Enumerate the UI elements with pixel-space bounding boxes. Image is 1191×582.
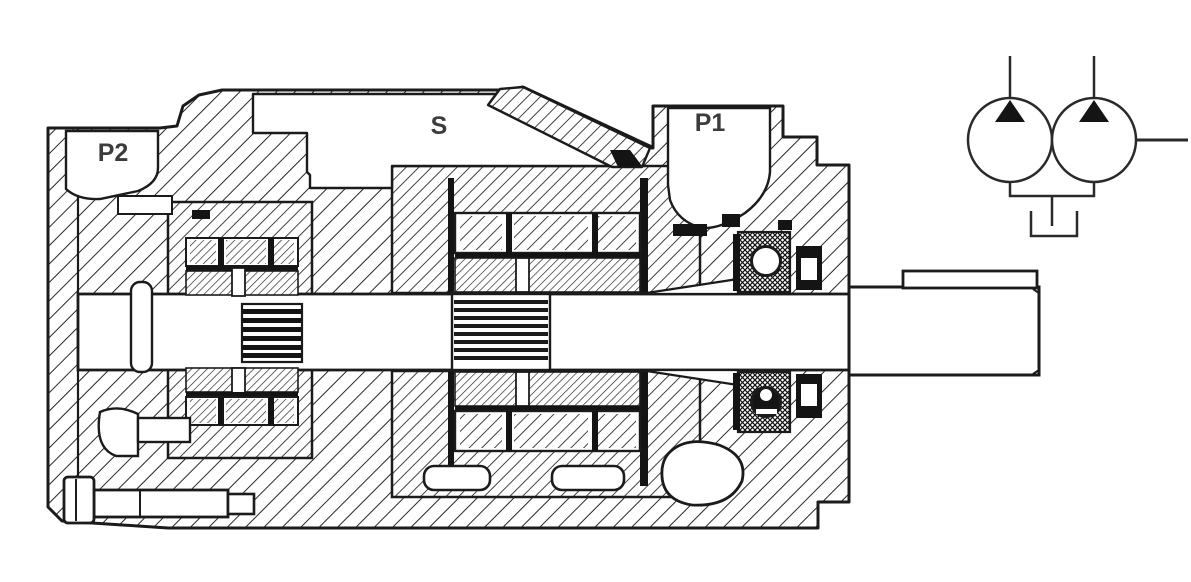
pump-cross-section: P2 S P1: [0, 0, 1191, 582]
bearing-ball-top: [752, 247, 781, 276]
pump-section-drawing-page: P2 S P1: [0, 0, 1191, 582]
shaft-splines: [452, 294, 550, 370]
shaft-extension: [849, 271, 1039, 375]
hydraulic-symbol: [968, 56, 1188, 236]
port-label-s: S: [431, 112, 448, 140]
port-label-p2: P2: [98, 139, 129, 167]
port-label-p1: P1: [695, 109, 726, 137]
tank-icon: [1031, 211, 1077, 236]
shaft-key: [903, 271, 1037, 288]
rotor-spline-bore: [242, 304, 302, 362]
suction-manifold-line: [1010, 182, 1094, 196]
dowel-pin: [131, 282, 152, 372]
